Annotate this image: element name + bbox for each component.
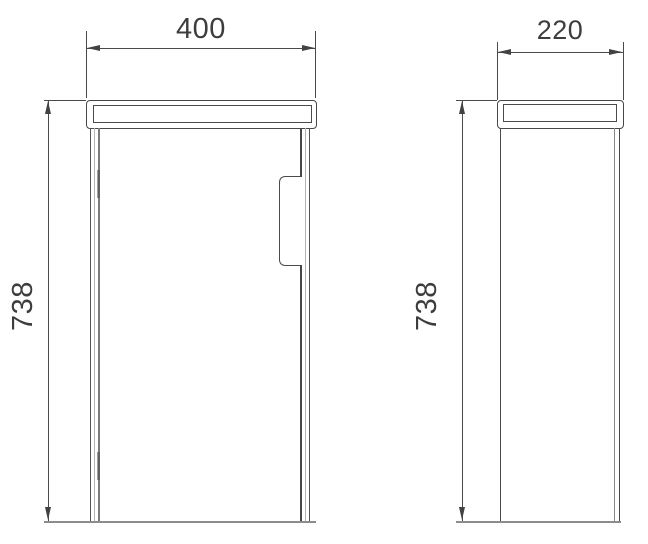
ext-line-400-left (86, 31, 87, 98)
front-left-outer-edge (90, 128, 91, 521)
dim-line-220 (497, 52, 623, 53)
arrow-738-left-top (45, 101, 51, 114)
side-top-rail-inner (503, 104, 617, 122)
side-front-edge (619, 128, 620, 521)
label-front-height: 738 (8, 266, 38, 346)
arrow-400-right (302, 45, 315, 51)
front-left-panel-line (94, 128, 95, 521)
front-right-panel-line (305, 128, 306, 521)
side-back-edge (500, 128, 501, 521)
side-bottom-edge (456, 521, 621, 523)
dim-line-738-right (462, 100, 463, 521)
dim-line-738-left (48, 100, 49, 521)
label-side-height: 738 (412, 266, 442, 346)
front-bottom-edge (44, 521, 316, 523)
arrow-220-left (498, 49, 511, 55)
front-right-outer-edge (309, 128, 310, 521)
arrow-738-left-bottom (45, 507, 51, 520)
arrow-738-right-bottom (459, 507, 465, 520)
door-handle (279, 176, 302, 266)
cabinet-dimension-drawing: 400 220 738 738 (0, 0, 648, 544)
label-side-depth: 220 (500, 15, 620, 45)
label-front-width: 400 (141, 14, 261, 44)
ext-line-220-right (623, 42, 624, 100)
front-top-rail-inner (93, 105, 312, 123)
arrow-400-left (87, 45, 100, 51)
arrow-738-right-top (459, 101, 465, 114)
ext-line-400-right (315, 31, 316, 98)
side-door-inner-line (614, 128, 615, 521)
dim-line-400 (86, 48, 316, 49)
arrow-220-right (609, 49, 622, 55)
hinge-mark-top (97, 170, 100, 198)
hinge-mark-bottom (97, 452, 100, 480)
